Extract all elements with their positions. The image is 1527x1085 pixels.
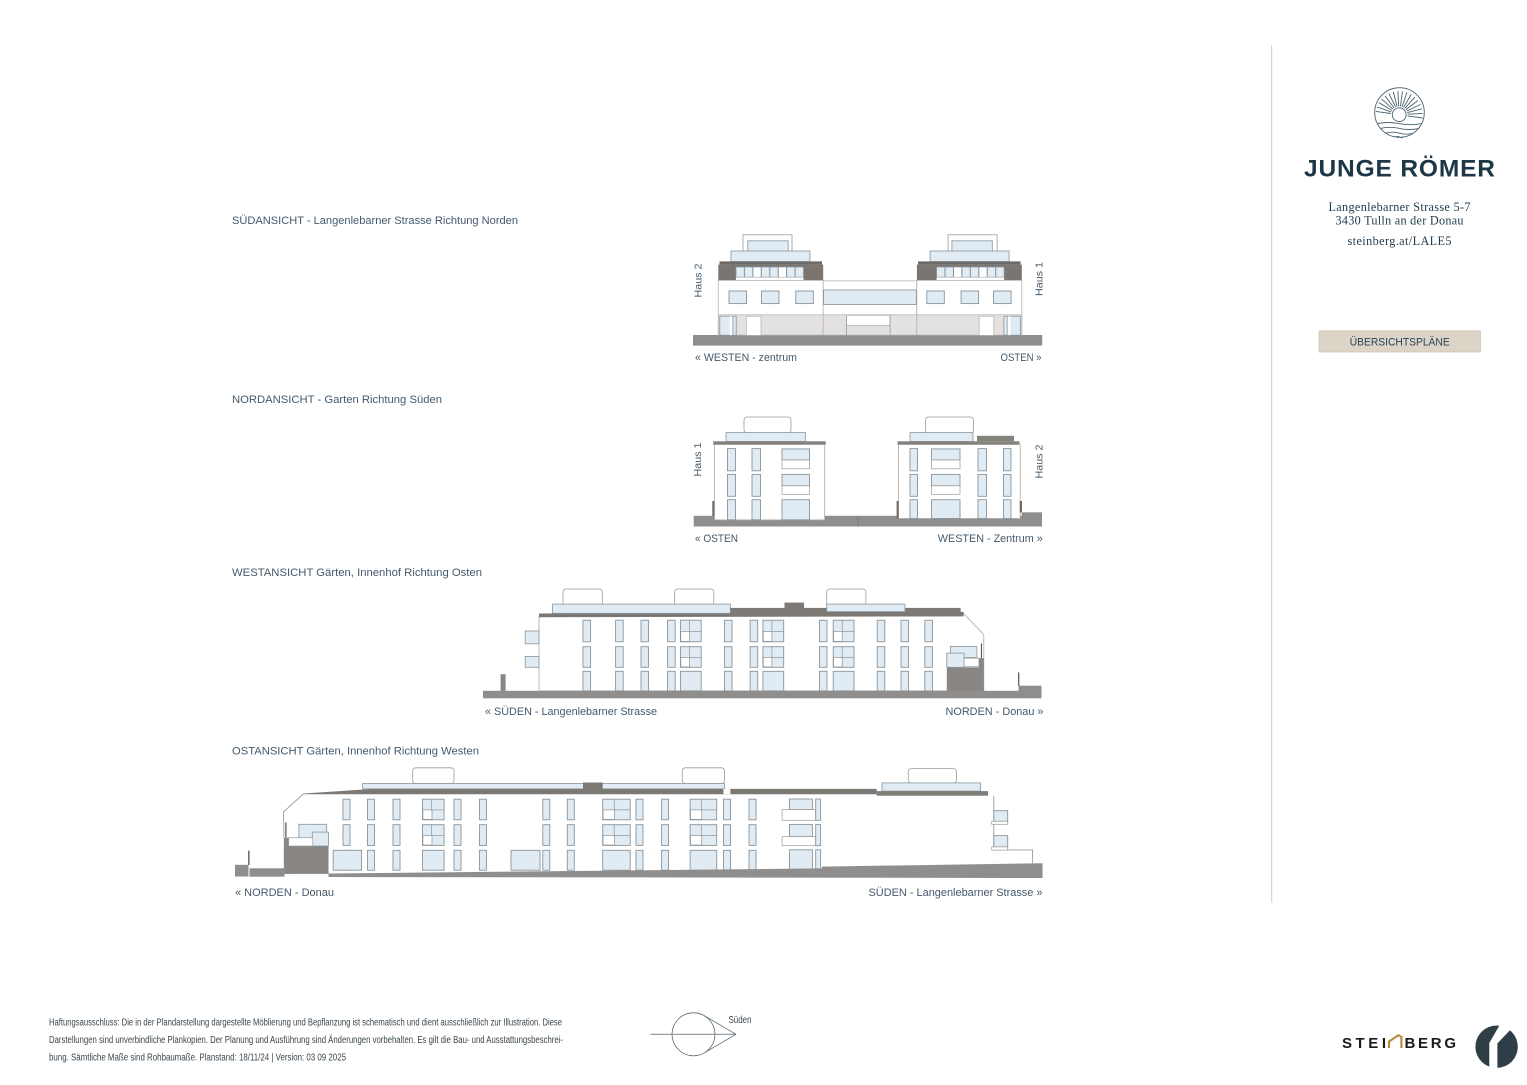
svg-text:Haftungsausschluss: Die in der: Haftungsausschluss: Die in der Plandarst…: [49, 1018, 562, 1029]
svg-text:SÜDANSICHT - Langenlebarner St: SÜDANSICHT - Langenlebarner Strasse Rich…: [232, 215, 518, 227]
svg-text:« SÜDEN - Langenlebarner Stras: « SÜDEN - Langenlebarner Strasse: [485, 706, 657, 718]
svg-text:« WESTEN - zentrum: « WESTEN - zentrum: [695, 352, 797, 364]
svg-text:ÜBERSICHTSPLÄNE: ÜBERSICHTSPLÄNE: [1350, 336, 1450, 348]
svg-text:Darstellungen sind unverbindli: Darstellungen sind unverbindliche Planko…: [49, 1035, 563, 1046]
svg-text:« NORDEN - Donau: « NORDEN - Donau: [235, 887, 334, 899]
svg-text:OSTEN »: OSTEN »: [1001, 352, 1042, 364]
svg-text:WESTEN - Zentrum »: WESTEN - Zentrum »: [938, 533, 1043, 545]
svg-text:Haus 2: Haus 2: [693, 263, 705, 297]
svg-text:Haus 1: Haus 1: [1034, 262, 1046, 296]
svg-text:NORDEN - Donau »: NORDEN - Donau »: [946, 706, 1044, 718]
svg-text:« OSTEN: « OSTEN: [695, 533, 738, 545]
svg-text:Haus 2: Haus 2: [1034, 444, 1046, 478]
svg-text:Langenlebarner Strasse 5-7: Langenlebarner Strasse 5-7: [1329, 200, 1471, 214]
svg-text:WESTANSICHT Gärten, Innenhof R: WESTANSICHT Gärten, Innenhof Richtung Os…: [232, 567, 482, 579]
svg-text:3430 Tulln an der Donau: 3430 Tulln an der Donau: [1336, 214, 1464, 228]
svg-text:NORDANSICHT - Garten Richtung: NORDANSICHT - Garten Richtung Süden: [232, 394, 442, 406]
svg-text:bung. Sämtliche Maße sind Rohb: bung. Sämtliche Maße sind Rohbaumaße. Pl…: [49, 1053, 346, 1064]
svg-text:OSTANSICHT Gärten, Innenhof Ri: OSTANSICHT Gärten, Innenhof Richtung Wes…: [232, 746, 479, 758]
svg-text:steinberg.at/LALE5: steinberg.at/LALE5: [1348, 234, 1452, 248]
svg-text:Haus 1: Haus 1: [692, 442, 704, 476]
svg-text:Süden: Süden: [729, 1014, 752, 1026]
svg-text:BERG: BERG: [1405, 1035, 1457, 1052]
svg-text:SÜDEN - Langenlebarner Strasse: SÜDEN - Langenlebarner Strasse »: [869, 887, 1043, 899]
svg-text:JUNGE RÖMER: JUNGE RÖMER: [1304, 156, 1495, 183]
